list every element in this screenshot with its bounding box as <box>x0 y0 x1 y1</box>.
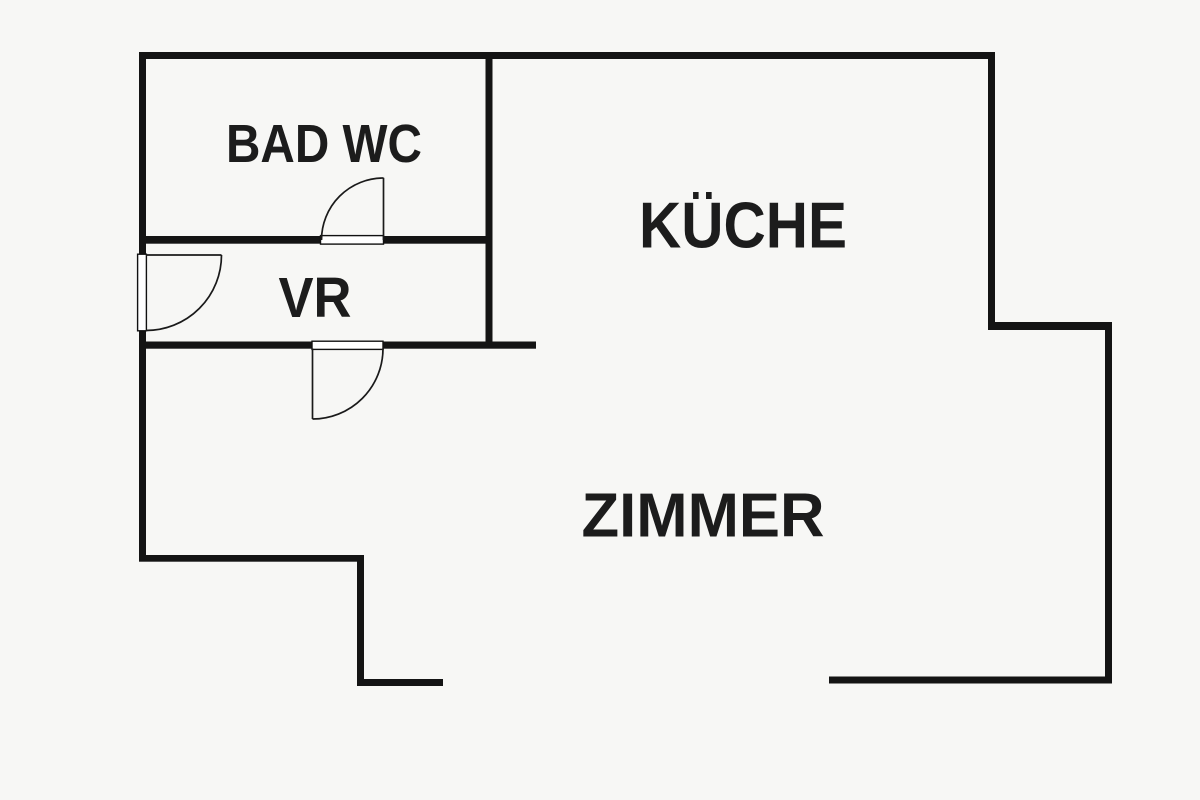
svg-text:KÜCHE: KÜCHE <box>639 189 847 262</box>
svg-text:VR: VR <box>279 266 352 330</box>
svg-text:ZIMMER: ZIMMER <box>582 481 825 551</box>
svg-text:BAD WC: BAD WC <box>226 114 422 174</box>
